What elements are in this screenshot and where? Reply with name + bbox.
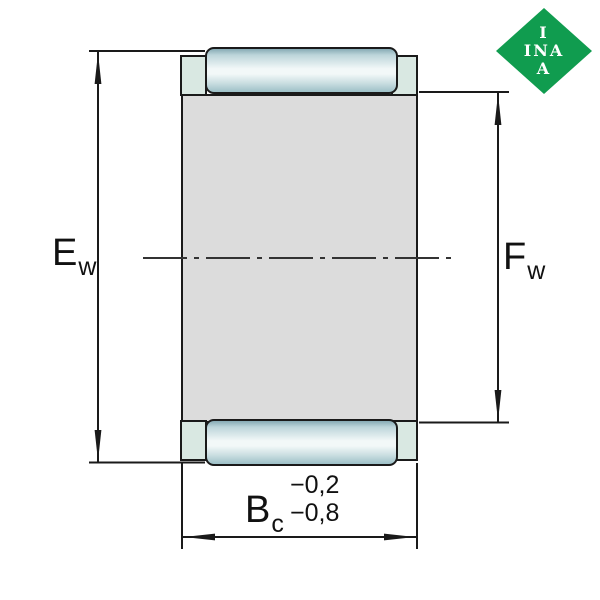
fw-label-main: F [503,236,526,278]
fw-label-sub: w [527,257,545,285]
bc-label: Bc [245,491,284,529]
ina-logo-line3: A [524,60,565,78]
bc-tolerances: −0,2 −0,8 [290,471,339,527]
arrow-down-icon [495,390,502,421]
tolerance-upper: −0,2 [290,471,339,499]
ew-label-main: E [52,232,77,274]
arrow-up-icon [95,53,102,84]
ina-logo-line1: I [524,24,565,42]
ew-label-sub: w [78,253,96,281]
ina-logo-line2: INA [524,42,565,60]
arrow-down-icon [95,430,102,461]
arrow-left-icon [184,534,215,541]
fw-label: Fw [503,238,545,276]
ew-label: Ew [52,234,96,272]
ina-logo-text: I INA A [524,24,565,78]
arrow-right-icon [384,534,415,541]
arrow-up-icon [495,94,502,125]
bc-label-main: B [245,489,270,531]
bc-label-sub: c [271,510,284,538]
tolerance-lower: −0,8 [290,499,339,527]
bearing-technical-drawing: Ew Fw Bc −0,2 −0,8 I INA A [0,0,600,600]
